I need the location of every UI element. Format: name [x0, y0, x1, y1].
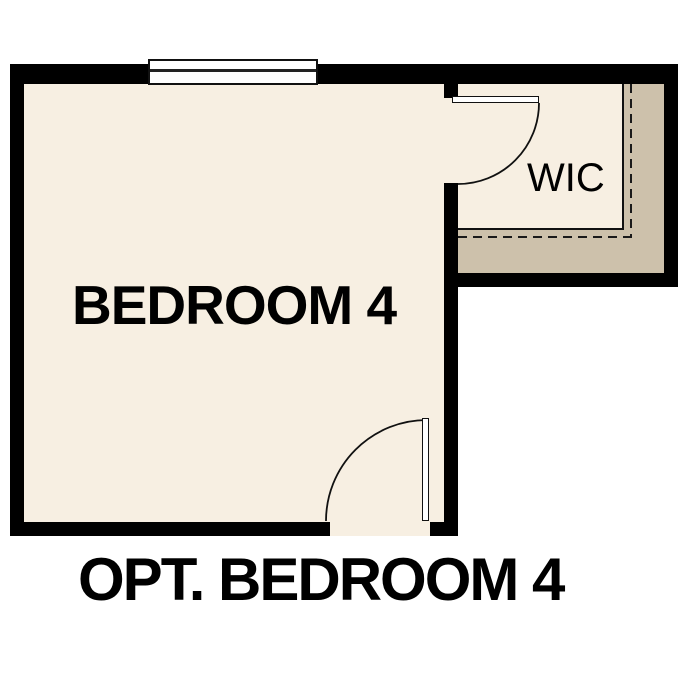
plan-caption: OPT. BEDROOM 4: [78, 550, 563, 610]
closet-dashed-line-horizontal: [458, 236, 633, 238]
entry-door-leaf: [422, 418, 429, 521]
entry-doorway-opening: [330, 522, 430, 536]
floor-plan: BEDROOM 4 WIC OPT. BEDROOM 4: [0, 0, 687, 687]
closet-dashed-line-vertical: [630, 84, 632, 238]
wall-wic-bottom: [444, 273, 678, 287]
wic-doorway-opening: [444, 98, 458, 183]
wic-label: WIC: [527, 158, 605, 198]
wall-right-inner: [444, 183, 458, 536]
wall-top: [10, 64, 678, 84]
wall-right-outer: [664, 64, 678, 287]
wall-bottom: [10, 522, 330, 536]
window-pane-line: [150, 69, 316, 72]
window-symbol: [148, 59, 318, 85]
wic-door-leaf: [452, 96, 539, 103]
bedroom-label: BEDROOM 4: [72, 278, 396, 333]
wall-left: [10, 64, 24, 536]
